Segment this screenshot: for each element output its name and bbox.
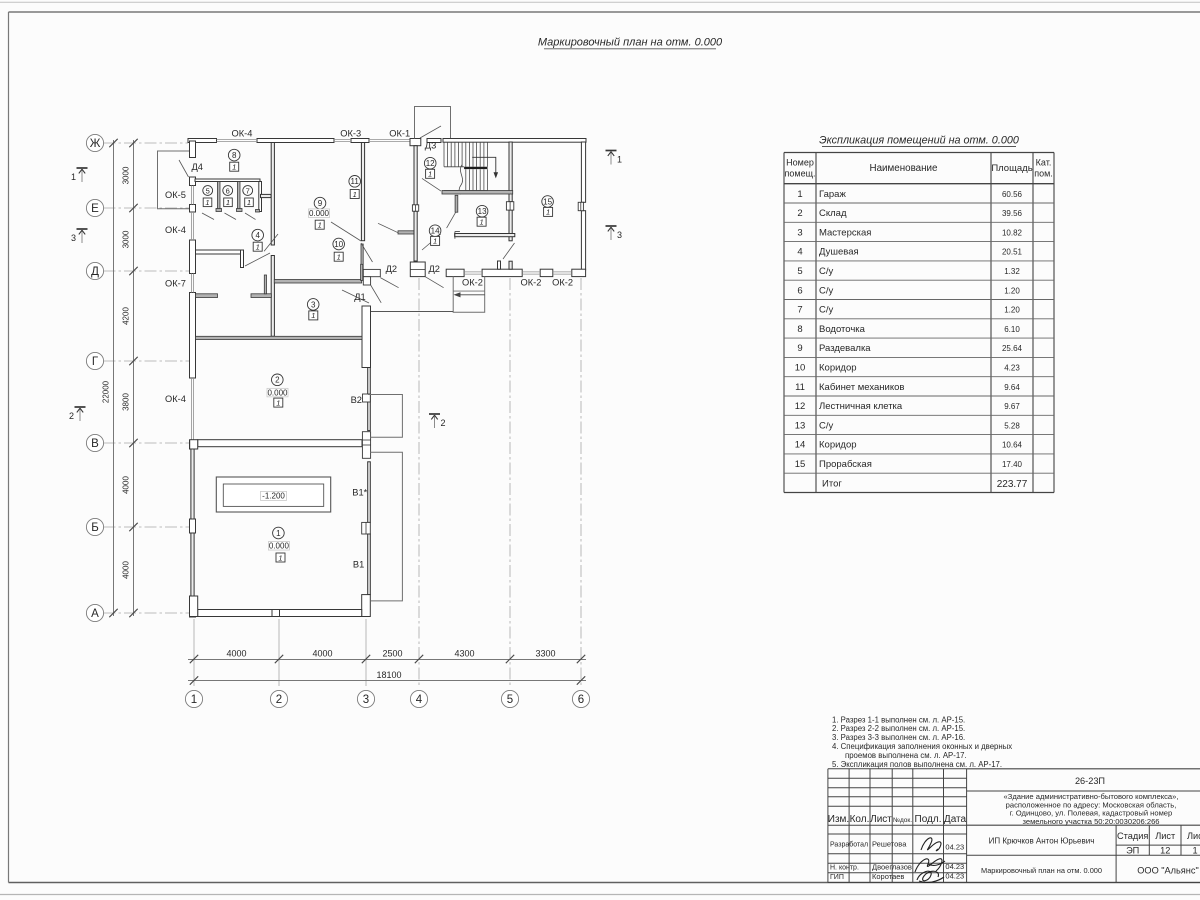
svg-text:1.20: 1.20 <box>1004 286 1020 295</box>
svg-text:ОК-2: ОК-2 <box>462 278 483 288</box>
svg-text:Двоеглазов: Двоеглазов <box>872 862 912 871</box>
svg-text:Склад: Склад <box>819 208 847 219</box>
svg-text:3800: 3800 <box>122 393 131 411</box>
svg-text:1: 1 <box>278 553 282 562</box>
svg-text:Н. контр.: Н. контр. <box>830 864 859 871</box>
svg-text:ИП Крючков Антон Юрьевич: ИП Крючков Антон Юрьевич <box>989 837 1095 846</box>
svg-text:Кол.: Кол. <box>850 814 870 825</box>
svg-text:22000: 22000 <box>102 380 111 403</box>
svg-text:4000: 4000 <box>122 476 131 494</box>
svg-text:1: 1 <box>71 172 76 182</box>
svg-text:Кабинет механиков: Кабинет механиков <box>819 382 904 393</box>
svg-text:1: 1 <box>353 190 357 199</box>
svg-text:2500: 2500 <box>382 649 402 659</box>
svg-text:0.000: 0.000 <box>267 388 288 397</box>
svg-text:Номер: Номер <box>786 158 814 168</box>
svg-text:земельного участка 50:20:00302: земельного участка 50:20:0030206:266 <box>1022 817 1159 826</box>
svg-text:1: 1 <box>1192 845 1197 855</box>
svg-text:1: 1 <box>226 198 230 207</box>
svg-text:12: 12 <box>795 401 806 412</box>
svg-text:10.82: 10.82 <box>1002 228 1023 237</box>
svg-text:Подл.: Подл. <box>915 814 942 825</box>
svg-text:13: 13 <box>478 207 487 216</box>
svg-text:ОК-4: ОК-4 <box>232 128 253 138</box>
svg-text:04.23: 04.23 <box>945 872 964 881</box>
svg-text:4: 4 <box>797 247 802 258</box>
svg-text:Г: Г <box>92 356 99 368</box>
svg-text:А: А <box>91 608 99 620</box>
svg-text:1: 1 <box>247 198 251 207</box>
svg-text:5.28: 5.28 <box>1004 421 1020 430</box>
svg-text:1: 1 <box>276 398 280 407</box>
svg-text:Экспликация помещений на отм.: Экспликация помещений на отм. 0.000 <box>819 135 1019 147</box>
svg-text:Изм.: Изм. <box>828 814 849 825</box>
svg-text:Маркировочный план на отм. 0.0: Маркировочный план на отм. 0.000 <box>538 37 723 49</box>
svg-text:С/у: С/у <box>819 285 834 296</box>
svg-text:ОК-3: ОК-3 <box>340 128 361 138</box>
svg-text:4.23: 4.23 <box>1004 363 1020 372</box>
svg-text:ОК-5: ОК-5 <box>165 190 186 200</box>
svg-text:9.67: 9.67 <box>1004 402 1020 411</box>
svg-text:9: 9 <box>318 199 323 208</box>
svg-text:223.77: 223.77 <box>997 479 1028 490</box>
svg-text:3300: 3300 <box>535 649 555 659</box>
svg-text:5. Экспликация полов выполнена: 5. Экспликация полов выполнена см. л. АР… <box>832 760 1002 769</box>
svg-text:3: 3 <box>363 694 369 706</box>
svg-text:2: 2 <box>275 376 280 385</box>
svg-text:ОК-4: ОК-4 <box>165 225 186 235</box>
svg-text:Д: Д <box>91 266 99 278</box>
svg-text:С/у: С/у <box>819 266 834 277</box>
svg-text:12: 12 <box>1160 845 1170 855</box>
svg-text:1: 1 <box>428 170 432 179</box>
svg-text:5: 5 <box>507 694 513 706</box>
svg-text:В1: В1 <box>353 559 364 569</box>
svg-text:2: 2 <box>276 694 282 706</box>
svg-text:39.56: 39.56 <box>1002 209 1023 218</box>
svg-text:1: 1 <box>337 253 341 262</box>
svg-text:ГИП: ГИП <box>830 874 844 881</box>
svg-text:Б: Б <box>91 522 99 534</box>
svg-text:Наименование: Наименование <box>870 163 938 174</box>
svg-text:1: 1 <box>546 208 550 217</box>
svg-text:10.64: 10.64 <box>1002 441 1023 450</box>
svg-text:4200: 4200 <box>122 307 131 325</box>
svg-text:Площадь: Площадь <box>991 163 1032 174</box>
svg-text:Д2: Д2 <box>429 264 440 274</box>
svg-text:5: 5 <box>206 186 210 195</box>
svg-text:Маркировочный план на отм. 0.0: Маркировочный план на отм. 0.000 <box>981 866 1102 875</box>
svg-text:6: 6 <box>578 694 584 706</box>
svg-text:9.64: 9.64 <box>1004 383 1020 392</box>
svg-text:1: 1 <box>433 237 437 246</box>
svg-text:проемов выполнена см. л. АР-17: проемов выполнена см. л. АР-17. <box>845 751 967 760</box>
svg-text:1: 1 <box>480 218 484 227</box>
svg-text:20.51: 20.51 <box>1002 248 1023 257</box>
svg-text:17.40: 17.40 <box>1002 460 1023 469</box>
svg-text:ОК-1: ОК-1 <box>389 128 410 138</box>
svg-text:Водоточка: Водоточка <box>819 324 866 335</box>
svg-text:1. Разрез 1-1 выполнен см. л.: 1. Разрез 1-1 выполнен см. л. АР-15. <box>832 715 965 724</box>
svg-text:3. Разрез 3-3 выполнен см. л.: 3. Разрез 3-3 выполнен см. л. АР-16. <box>832 733 965 742</box>
svg-text:14: 14 <box>431 227 440 236</box>
svg-text:Е: Е <box>91 203 99 215</box>
svg-text:12: 12 <box>426 159 435 168</box>
svg-text:2: 2 <box>797 208 802 219</box>
svg-text:5: 5 <box>797 266 802 277</box>
svg-text:2: 2 <box>69 411 74 421</box>
svg-text:4. Спецификация заполнения око: 4. Спецификация заполнения оконных и две… <box>832 742 1012 751</box>
svg-text:Д2: Д2 <box>386 264 397 274</box>
svg-text:Стадия: Стадия <box>1117 831 1148 841</box>
svg-text:ЭП: ЭП <box>1126 845 1139 855</box>
svg-text:ОК-4: ОК-4 <box>165 394 186 404</box>
svg-text:6: 6 <box>797 285 802 296</box>
svg-text:Раздевалка: Раздевалка <box>819 343 871 354</box>
svg-text:1: 1 <box>276 529 281 538</box>
svg-text:ОК-2: ОК-2 <box>552 278 573 288</box>
svg-text:1: 1 <box>256 243 260 252</box>
svg-text:3: 3 <box>71 233 76 243</box>
svg-text:18100: 18100 <box>376 670 401 680</box>
svg-text:Ж: Ж <box>90 138 101 150</box>
svg-text:1: 1 <box>191 694 197 706</box>
svg-text:С/у: С/у <box>819 420 834 431</box>
svg-text:8: 8 <box>232 151 237 160</box>
svg-text:4: 4 <box>255 231 260 240</box>
svg-text:0.000: 0.000 <box>309 209 330 218</box>
svg-text:Д4: Д4 <box>192 162 203 172</box>
svg-text:В2: В2 <box>351 395 362 405</box>
svg-text:2: 2 <box>441 418 446 428</box>
svg-text:1: 1 <box>318 221 322 230</box>
svg-text:4000: 4000 <box>122 561 131 579</box>
svg-text:пом.: пом. <box>1034 169 1053 179</box>
svg-text:2. Разрез 2-2 выполнен см. л.: 2. Разрез 2-2 выполнен см. л. АР-15. <box>832 724 965 733</box>
svg-text:0.000: 0.000 <box>269 542 290 551</box>
svg-text:Дата: Дата <box>944 814 967 825</box>
svg-text:Д3: Д3 <box>425 141 436 151</box>
svg-text:7: 7 <box>797 305 802 316</box>
svg-text:4000: 4000 <box>226 649 246 659</box>
svg-text:Разработал: Разработал <box>830 841 868 849</box>
svg-text:№док.: №док. <box>893 817 912 824</box>
svg-text:Гараж: Гараж <box>819 189 846 200</box>
svg-text:4300: 4300 <box>454 649 474 659</box>
svg-text:60.56: 60.56 <box>1002 190 1023 199</box>
svg-text:ОК-7: ОК-7 <box>165 278 186 288</box>
svg-text:С/у: С/у <box>819 305 834 316</box>
svg-text:25.64: 25.64 <box>1002 344 1023 353</box>
svg-text:Мастерская: Мастерская <box>819 227 871 238</box>
svg-text:10: 10 <box>795 362 806 373</box>
svg-text:3: 3 <box>311 300 316 309</box>
svg-text:Коротаев: Коротаев <box>872 872 904 881</box>
svg-text:Душевая: Душевая <box>819 247 859 258</box>
svg-text:9: 9 <box>797 343 802 354</box>
svg-text:10: 10 <box>334 240 343 249</box>
svg-text:04.23: 04.23 <box>945 862 964 871</box>
svg-text:Кат.: Кат. <box>1036 158 1052 168</box>
svg-text:04.23: 04.23 <box>945 843 964 852</box>
svg-text:ОК-2: ОК-2 <box>521 278 542 288</box>
svg-text:15: 15 <box>543 197 552 206</box>
svg-text:13: 13 <box>795 420 806 431</box>
svg-text:14: 14 <box>795 440 806 451</box>
svg-text:6: 6 <box>226 186 230 195</box>
svg-text:3000: 3000 <box>122 230 131 248</box>
svg-text:Лист: Лист <box>870 814 892 825</box>
svg-text:7: 7 <box>246 186 250 195</box>
svg-text:11: 11 <box>795 382 805 393</box>
svg-text:1: 1 <box>205 198 209 207</box>
svg-text:Коридор: Коридор <box>819 362 857 373</box>
svg-text:В: В <box>91 438 99 450</box>
svg-text:Лестничная клетка: Лестничная клетка <box>819 401 903 412</box>
svg-text:Лист: Лист <box>1187 831 1200 841</box>
svg-text:В1*: В1* <box>352 487 367 497</box>
svg-text:1: 1 <box>232 163 236 172</box>
svg-text:-1.200: -1.200 <box>262 492 285 501</box>
svg-text:8: 8 <box>797 324 802 335</box>
svg-text:4000: 4000 <box>312 649 332 659</box>
svg-text:1: 1 <box>797 189 802 200</box>
svg-text:помещ.: помещ. <box>785 169 816 179</box>
svg-text:6.10: 6.10 <box>1004 325 1020 334</box>
svg-text:Решетова: Решетова <box>872 840 907 849</box>
svg-text:Лист: Лист <box>1155 831 1176 841</box>
svg-text:3: 3 <box>797 227 802 238</box>
svg-text:Итог: Итог <box>822 478 842 489</box>
svg-text:Коридор: Коридор <box>819 440 857 451</box>
svg-text:Прорабская: Прорабская <box>819 459 872 470</box>
svg-text:26-23П: 26-23П <box>1075 776 1105 786</box>
svg-text:ООО "Альянс": ООО "Альянс" <box>1137 865 1198 875</box>
svg-text:Д1: Д1 <box>354 292 365 302</box>
svg-text:3: 3 <box>617 230 622 240</box>
svg-text:11: 11 <box>351 177 360 186</box>
svg-text:1: 1 <box>617 155 622 165</box>
svg-text:1.20: 1.20 <box>1004 306 1020 315</box>
svg-text:3000: 3000 <box>122 166 131 184</box>
svg-text:4: 4 <box>416 694 423 706</box>
svg-text:1: 1 <box>311 311 315 320</box>
svg-text:1.32: 1.32 <box>1004 267 1020 276</box>
svg-text:15: 15 <box>795 459 806 470</box>
